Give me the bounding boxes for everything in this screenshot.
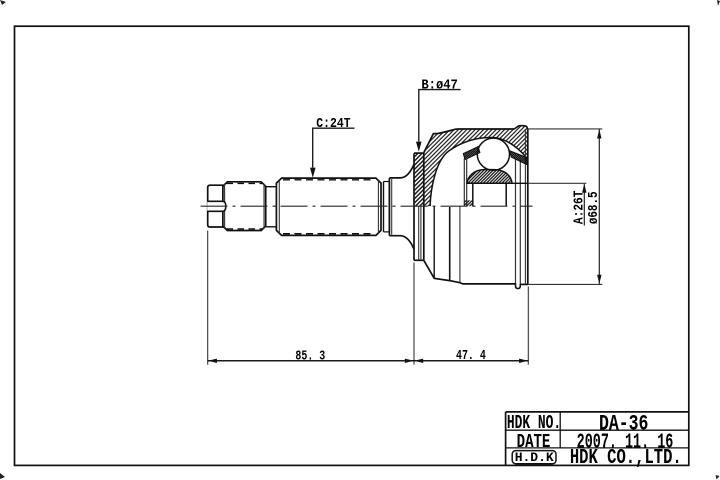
svg-text:C:24T: C:24T [316, 115, 351, 131]
svg-text:H.D.K: H.D.K [515, 450, 554, 465]
svg-text:A:26T: A:26T [570, 190, 587, 224]
svg-text:HDK CO.,LTD.: HDK CO.,LTD. [570, 446, 682, 470]
svg-text:HDK NO.: HDK NO. [507, 412, 561, 434]
svg-text:85. 3: 85. 3 [295, 348, 325, 364]
svg-text:ø68.5: ø68.5 [586, 191, 602, 224]
svg-text:B:ø47: B:ø47 [421, 77, 458, 93]
svg-text:47. 4: 47. 4 [456, 348, 486, 364]
